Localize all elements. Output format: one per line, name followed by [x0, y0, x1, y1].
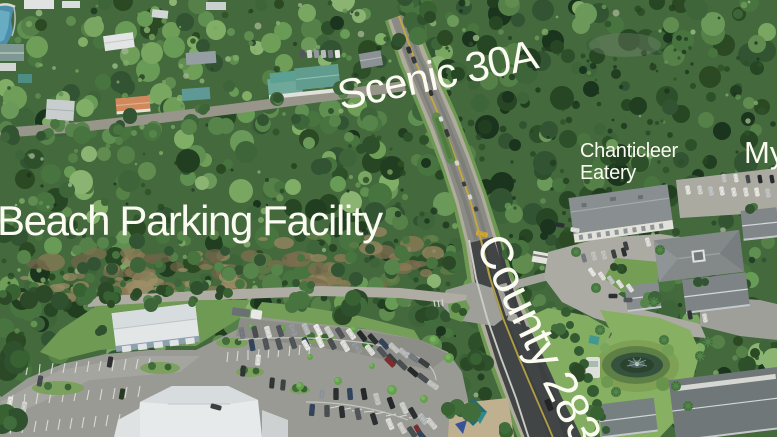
svg-text:Beach Parking Facility: Beach Parking Facility	[0, 197, 383, 244]
svg-text:Eatery: Eatery	[580, 162, 636, 184]
svg-text:My: My	[744, 135, 777, 170]
svg-text:Chanticleer: Chanticleer	[580, 140, 679, 162]
